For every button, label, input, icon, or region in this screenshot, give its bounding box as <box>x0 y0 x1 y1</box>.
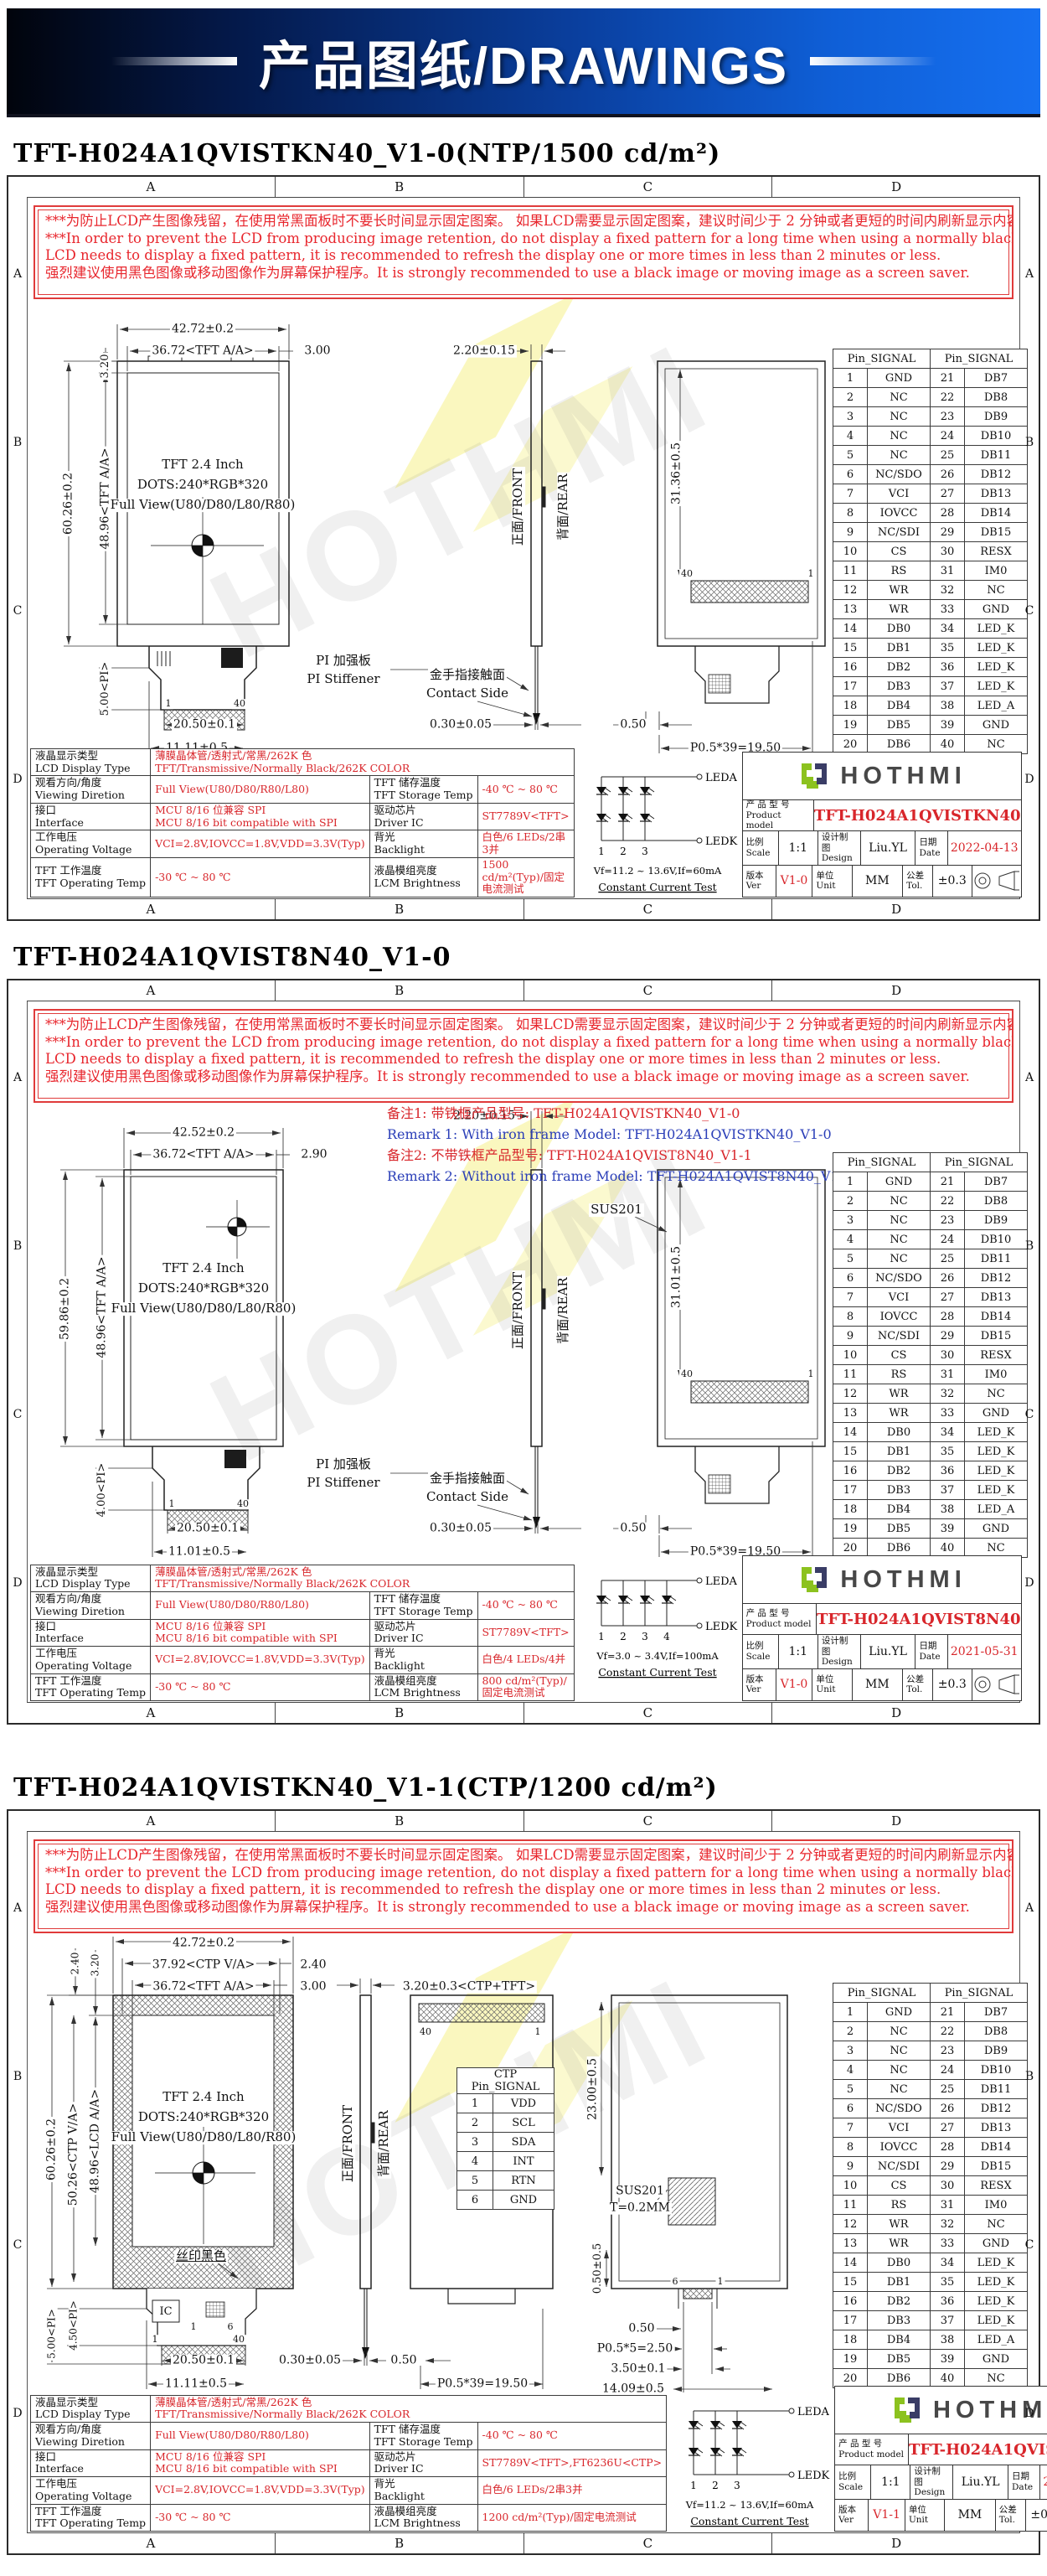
dim-label: 40 <box>418 2027 433 2037</box>
dim-label: 3.00 <box>302 345 332 358</box>
titleblock-value: 2022-04-13 <box>1040 2465 1047 2499</box>
titleblock-label: 版本Ver <box>743 866 776 897</box>
dim-label: 2.90 <box>299 1149 328 1161</box>
titleblock-value: 1:1 <box>871 2465 910 2499</box>
hothmi-logo-text: HOTHMI <box>840 763 966 790</box>
pin-row: 9NC/SDI29DB15 <box>833 1327 1028 1346</box>
dim-label: 1 <box>168 1499 177 1509</box>
warning-line: ***In order to prevent the LCD from prod… <box>45 1034 1002 1052</box>
warning-line: 强烈建议使用黑色图像或移动图像作为屏幕保护程序。It is strongly r… <box>45 1068 1002 1086</box>
spec-label: 驱动芯片Driver IC <box>369 1619 477 1647</box>
section-title-1: TFT-H024A1QVISTKN40_V1-0(NTP/1500 cd/m²) <box>13 139 1047 168</box>
drawing-sheet-2: ABCD ABCD ABCD ABCD HOTHMI ***为防止LCD产生图像… <box>7 979 1040 1725</box>
product-model-value: TFT-H024A1QVIST8N40 <box>817 1604 1021 1634</box>
title-block: HOTHMI产 品 型 号Product modelTFT-H024A1QVIS… <box>834 2386 1047 2532</box>
sheet-column-labels-bottom: ABCD <box>27 2532 1020 2553</box>
titleblock-label: 比例Scale <box>743 831 779 865</box>
drawing-sheet-3: ABCD ABCD ABCD ABCD HOTHMI ***为防止LCD产生图像… <box>7 1809 1040 2555</box>
dim-label: 31.36±0.5 <box>671 441 683 506</box>
pin-row: 16DB236LED_K <box>833 658 1028 677</box>
dim-label: 3.00 <box>298 1981 328 1994</box>
pin-row: 17DB337LED_K <box>833 1481 1028 1500</box>
frame-letter: D <box>772 177 1020 197</box>
led-circuit-svg: 123LEDALEDKVf=11.2 ~ 13.6V,If=60mAConsta… <box>670 2396 834 2532</box>
titleblock-label: 版本Ver <box>835 2500 869 2531</box>
dim-label: 48.96<TFT A/A> <box>96 1254 109 1359</box>
front-view <box>124 1170 283 1510</box>
svg-text:LEDA: LEDA <box>705 772 738 784</box>
spec-value: 薄膜晶体管/透射式/常黑/262K 色TFT/Transmissive/Norm… <box>151 1565 575 1592</box>
spec-value: -30 ℃ ~ 80 ℃ <box>151 2504 370 2532</box>
ctp-pin-row: 6GND <box>457 2191 554 2210</box>
spec-label: 背光Backlight <box>369 1647 477 1674</box>
pin-row: 19DB539GND <box>833 2350 1028 2369</box>
dim-label: 20.50±0.1 <box>175 1523 240 1535</box>
spec-value: 1200 cd/m²(Typ)/固定电流测试 <box>477 2504 667 2532</box>
image-retention-warning: ***为防止LCD产生图像残留，在使用常黑面板时不要长时间显示固定图案。 如果L… <box>34 205 1013 299</box>
dim-label: 0.30±0.05 <box>277 2355 343 2367</box>
ctp-pin-row: 2SCL <box>457 2113 554 2133</box>
module-views-3 <box>25 1930 856 2399</box>
drawing-area-3: 42.72±0.237.92<CTP V/A>2.4036.72<TFT A/A… <box>25 1930 856 2399</box>
spec-label: TFT 储存温度TFT Storage Temp <box>369 776 477 804</box>
pin-row: 14DB034LED_K <box>833 2253 1028 2273</box>
front-view <box>117 356 289 710</box>
ctp-pin-table: CTP Pin_SIGNAL1VDD2SCL3SDA4INT5RTN6GND <box>456 2067 554 2210</box>
spec-value: MCU 8/16 位兼容 SPIMCU 8/16 bit compatible … <box>151 1619 370 1647</box>
frame-letter: A <box>9 1071 26 1084</box>
hothmi-logo-icon <box>797 1563 832 1596</box>
frame-letter: D <box>9 2407 26 2420</box>
sheet-row-labels-left: ABCD <box>9 197 26 899</box>
titleblock-value: Liu.YL <box>861 831 916 865</box>
pin-row: 5NC25DB11 <box>833 1249 1028 1269</box>
titleblock-label: 比例Scale <box>835 2465 871 2499</box>
frame-letter: B <box>276 2533 524 2553</box>
spec-value: Full View(U80/D80/R80/L80) <box>151 2423 370 2450</box>
svg-text:1: 1 <box>598 846 605 857</box>
svg-text:2: 2 <box>620 1631 627 1642</box>
title-block: HOTHMI产 品 型 号Product modelTFT-H024A1QVIS… <box>742 1555 1022 1701</box>
hothmi-logo-text: HOTHMI <box>840 1566 966 1594</box>
spec-value: ST7789V<TFT> <box>477 1619 574 1647</box>
warning-line: LCD needs to display a fixed pattern, it… <box>45 1051 1002 1068</box>
dim-label: 2.40 <box>70 1951 81 1977</box>
dim-label: 0.50 <box>618 719 647 732</box>
dim-label: 1 <box>151 2335 160 2345</box>
frame-letter: C <box>524 1703 773 1723</box>
frame-letter: C <box>524 2533 773 2553</box>
dim-label: 0.50 <box>389 2355 418 2367</box>
dim-label: 丝印黑色 <box>174 2250 228 2263</box>
dim-label: 2.40 <box>298 1959 328 1972</box>
pin-row: 19DB539GND <box>833 1519 1028 1539</box>
dim-label: 2.20±0.15 <box>451 345 517 358</box>
hothmi-logo-icon <box>797 759 832 793</box>
warning-line: ***为防止LCD产生图像残留，在使用常黑面板时不要长时间显示固定图案。 如果L… <box>45 1847 1002 1865</box>
spec-value: -30 ℃ ~ 80 ℃ <box>151 1673 370 1701</box>
sheet-column-labels-bottom: ABCD <box>27 1702 1020 1723</box>
frame-letter: C <box>9 2238 26 2252</box>
ctp-pin-row: 3SDA <box>457 2133 554 2152</box>
svg-text:LEDK: LEDK <box>797 2470 830 2482</box>
spec-value: -40 ℃ ~ 80 ℃ <box>477 2423 667 2450</box>
pin-row: 13WR33GND <box>833 1404 1028 1423</box>
spec-value: -30 ℃ ~ 80 ℃ <box>151 857 370 897</box>
dim-label: 1 <box>534 2027 543 2037</box>
frame-remarks: 备注1: 带铁框产品型号: TFT-H024A1QVISTKN40_V1-0Re… <box>387 1103 852 1187</box>
spec-value: MCU 8/16 位兼容 SPIMCU 8/16 bit compatible … <box>151 803 370 830</box>
warning-line: ***为防止LCD产生图像残留，在使用常黑面板时不要长时间显示固定图案。 如果L… <box>45 1016 1002 1034</box>
titleblock-label: 单位Unit <box>905 2500 945 2531</box>
frame-letter: C <box>524 177 773 197</box>
pin-table-container: Pin_SIGNALPin_SIGNAL1GND21DB72NC22DB83NC… <box>833 1983 1028 2388</box>
sheet-row-labels-right: ABCD <box>1021 1001 1038 1703</box>
hothmi-logo: HOTHMI <box>743 1556 1021 1604</box>
spec-label: 背光Backlight <box>369 830 477 858</box>
dim-label: 0.50±0.5 <box>592 2242 604 2296</box>
dim-label: 1 <box>189 2322 199 2332</box>
pin-row: 6NC/SDO26DB12 <box>833 1269 1028 1288</box>
page: { "banner": {"title": "产品图纸/DRAWINGS"}, … <box>0 8 1047 2576</box>
spec-label: 工作电压Operating Voltage <box>31 2477 151 2505</box>
pin-row: 11RS31IM0 <box>833 1365 1028 1384</box>
dim-label: 20.50±0.1 <box>171 2355 236 2367</box>
banner-dash-right <box>810 57 936 65</box>
titleblock-container: HOTHMI产 品 型 号Product modelTFT-H024A1QVIS… <box>742 752 1022 897</box>
pin-signal-table: Pin_SIGNALPin_SIGNAL1GND21DB72NC22DB83NC… <box>833 349 1028 754</box>
spec-label: 观看方向/角度Viewing Diretion <box>31 1592 151 1620</box>
spec-label: TFT 工作温度TFT Operating Temp <box>31 1673 151 1701</box>
frame-letter: B <box>1021 1239 1038 1253</box>
frame-letter: D <box>1021 773 1038 786</box>
rear-view <box>658 361 825 703</box>
pin-table-header: Pin_SIGNAL <box>833 349 931 369</box>
section-title-3: TFT-H024A1QVISTKN40_V1-1(CTP/1200 cd/m²) <box>13 1773 1047 1803</box>
spec-value: -40 ℃ ~ 80 ℃ <box>477 776 574 804</box>
svg-text:1: 1 <box>690 2480 697 2491</box>
spec-label: 驱动芯片Driver IC <box>369 2449 477 2477</box>
pin-row: 6NC/SDO26DB12 <box>833 465 1028 484</box>
sheet-bottom-block: 液晶显示类型LCD Display Type薄膜晶体管/透射式/常黑/262K … <box>30 1557 1017 1701</box>
dim-label: TFT 2.4 Inch <box>160 458 245 472</box>
spec-value: VCI=2.8V,IOVCC=1.8V,VDD=3.3V(Typ) <box>151 830 370 858</box>
titleblock-label: 单位Unit <box>812 1669 852 1700</box>
dim-label: Contact Side <box>425 687 510 701</box>
warning-line: ***In order to prevent the LCD from prod… <box>45 230 1002 248</box>
spec-value: 薄膜晶体管/透射式/常黑/262K 色TFT/Transmissive/Norm… <box>151 748 575 776</box>
remark-line: 备注1: 带铁框产品型号: TFT-H024A1QVISTKN40_V1-0 <box>387 1103 852 1124</box>
center-mark-icon <box>151 497 264 624</box>
frame-letter: D <box>772 2533 1020 2553</box>
frame-letter: B <box>276 980 524 1001</box>
spec-label: 观看方向/角度Viewing Diretion <box>31 776 151 804</box>
dim-label: 50.26<CTP V/A> <box>68 2102 80 2207</box>
dim-label: 36.72<TFT A/A> <box>151 1981 255 1994</box>
frame-letter: B <box>9 436 26 449</box>
frame-letter: C <box>9 1408 26 1421</box>
frame-letter: C <box>1021 2238 1038 2252</box>
section-title-2: TFT-H024A1QVIST8N40_V1-0 <box>13 943 1047 972</box>
dim-label: 42.72±0.2 <box>170 323 235 336</box>
pin-row: 11RS31IM0 <box>833 2196 1028 2215</box>
pin-row: 14DB034LED_K <box>833 1423 1028 1442</box>
pin-row: 14DB034LED_K <box>833 619 1028 639</box>
pin-row: 7VCI27DB13 <box>833 1288 1028 1307</box>
dim-label: 3.20±0.3<CTP+TFT> <box>401 1981 537 1994</box>
pin-row: 12WR32NC <box>833 2215 1028 2234</box>
titleblock-value: 1:1 <box>779 831 818 865</box>
sheet-column-labels-top: ABCD <box>27 177 1020 198</box>
svg-text:2: 2 <box>620 846 627 857</box>
hothmi-logo: HOTHMI <box>743 753 1021 800</box>
titleblock-label: 日期Date <box>915 831 947 865</box>
spec-label: 接口Interface <box>31 1619 151 1647</box>
frame-letter: A <box>27 980 276 1001</box>
pin-row: 3NC23DB9 <box>833 407 1028 427</box>
dim-label: 40 <box>679 1369 694 1379</box>
frame-letter: A <box>1021 1901 1038 1915</box>
frame-letter: D <box>772 980 1020 1001</box>
dim-label: 4.50<PI> <box>69 2299 80 2352</box>
pin-row: 3NC23DB9 <box>833 2041 1028 2061</box>
dim-label: 40 <box>679 569 694 579</box>
dim-label: 1 <box>807 569 816 579</box>
titleblock-label: 比例Scale <box>743 1635 779 1668</box>
pin-row: 15DB135LED_K <box>833 639 1028 658</box>
dim-label: 正面/FRONT <box>512 1270 525 1351</box>
dim-label: 60.26±0.2 <box>63 471 75 536</box>
pin-row: 8IOVCC28DB14 <box>833 2138 1028 2157</box>
dim-label: 42.52±0.2 <box>171 1127 236 1140</box>
rear-view <box>658 1170 825 1503</box>
fpc-component <box>221 648 243 668</box>
svg-text:Constant Current Test: Constant Current Test <box>690 2515 808 2527</box>
pin-table-header: Pin_SIGNAL <box>833 1984 931 2003</box>
remark-line: Remark 1: With iron frame Model: TFT-H02… <box>387 1124 852 1145</box>
dim-label: 0.50 <box>618 1523 647 1535</box>
dim-label: 48.96<LCD A/A> <box>90 2087 102 2195</box>
frame-letter: B <box>9 1239 26 1253</box>
pin-row: 16DB236LED_K <box>833 2292 1028 2311</box>
dim-label: 金手指接触面 <box>428 1472 507 1486</box>
dim-label: PI Stiffener <box>305 1477 381 1490</box>
dim-label: TFT 2.4 Inch <box>161 2091 245 2104</box>
side-view <box>360 1995 374 2359</box>
frame-letter: B <box>1021 2070 1038 2083</box>
pin-row: 13WR33GND <box>833 2234 1028 2253</box>
dim-label: 背面/REAR <box>557 1275 570 1345</box>
banner-dash-left <box>111 57 237 65</box>
led-circuit: 123LEDALEDKVf=11.2 ~ 13.6V,If=60mAConsta… <box>578 762 742 897</box>
titleblock-value: 1:1 <box>779 1635 818 1668</box>
ctp-pin-row: 5RTN <box>457 2171 554 2191</box>
frame-letter: A <box>27 177 276 197</box>
dim-label: Contact Side <box>425 1491 510 1504</box>
pin-table-header: Pin_SIGNAL <box>931 1153 1028 1172</box>
titleblock-value: 2021-05-31 <box>948 1635 1021 1668</box>
spec-label: 液晶模组亮度LCM Brightness <box>369 1673 477 1701</box>
pin-row: 17DB337LED_K <box>833 2311 1028 2330</box>
remark-line: Remark 2: Without iron frame Model: TFT-… <box>387 1166 852 1187</box>
titleblock-value: MM <box>945 2500 996 2531</box>
hothmi-logo-icon <box>890 2393 925 2427</box>
frame-letter: D <box>9 773 26 786</box>
titleblock-container: HOTHMI产 品 型 号Product modelTFT-H024A1QVIS… <box>742 1555 1022 1701</box>
dim-label: P0.5*5=2.50 <box>596 2343 675 2356</box>
led-circuit: 1234LEDALEDKVf=3.0 ~ 3.4V,If=100mAConsta… <box>578 1565 742 1701</box>
spec-table: 液晶显示类型LCD Display Type薄膜晶体管/透射式/常黑/262K … <box>30 1565 575 1702</box>
spec-table: 液晶显示类型LCD Display Type薄膜晶体管/透射式/常黑/262K … <box>30 748 575 897</box>
dim-label: 0.30±0.05 <box>428 719 493 732</box>
svg-text:Vf=3.0 ~ 3.4V,If=100mA: Vf=3.0 ~ 3.4V,If=100mA <box>596 1650 719 1662</box>
svg-text:LEDK: LEDK <box>705 1621 738 1633</box>
frame-letter: C <box>1021 1408 1038 1421</box>
titleblock-value: V1-0 <box>776 866 813 897</box>
warning-line: 强烈建议使用黑色图像或移动图像作为屏幕保护程序。It is strongly r… <box>45 265 1002 282</box>
spec-value: 1500 cd/m²(Typ)/固定电流测试 <box>477 857 574 897</box>
pin-row: 8IOVCC28DB14 <box>833 1307 1028 1327</box>
pin-table-container: Pin_SIGNALPin_SIGNAL1GND21DB72NC22DB83NC… <box>833 349 1028 754</box>
titleblock-value: Liu.YL <box>861 1635 916 1668</box>
titleblock-label: 设计制图Design <box>910 2465 953 2499</box>
spec-label: TFT 工作温度TFT Operating Temp <box>31 2504 151 2532</box>
pin-table-header: Pin_SIGNAL <box>931 349 1028 369</box>
sheet-row-labels-right: ABCD <box>1021 1831 1038 2533</box>
drawing-sheet-1: ABCD ABCD ABCD ABCD HOTHMI ***为防止LCD产生图像… <box>7 175 1040 921</box>
spec-label: 接口Interface <box>31 2449 151 2477</box>
dim-label: 42.72±0.2 <box>171 1937 236 1950</box>
frame-letter: C <box>524 980 773 1001</box>
warning-line: LCD needs to display a fixed pattern, it… <box>45 1881 1002 1899</box>
frame-letter: D <box>9 1576 26 1590</box>
pin-row: 12WR32NC <box>833 581 1028 600</box>
product-model-row: 产 品 型 号Product modelTFT-H024A1QVISTKN40 <box>743 800 1021 831</box>
spec-label: 观看方向/角度Viewing Diretion <box>31 2423 151 2450</box>
pin-row: 19DB539GND <box>833 716 1028 735</box>
dim-label: 6 <box>671 2277 680 2287</box>
spec-value: MCU 8/16 位兼容 SPIMCU 8/16 bit compatible … <box>151 2449 370 2477</box>
spec-label: TFT 工作温度TFT Operating Temp <box>31 857 151 897</box>
titleblock-label: 设计制图Design <box>818 1635 861 1668</box>
dim-label: PI 加强板 <box>314 654 373 668</box>
svg-text:LEDK: LEDK <box>705 835 738 848</box>
dim-label: PI Stiffener <box>305 673 381 686</box>
warning-line: 强烈建议使用黑色图像或移动图像作为屏幕保护程序。It is strongly r… <box>45 1899 1002 1916</box>
dim-label: DOTS:240*RGB*320 <box>137 1282 271 1296</box>
titleblock-label: 单位Unit <box>812 866 852 897</box>
spec-label: 液晶显示类型LCD Display Type <box>31 748 151 776</box>
dim-label: 37.92<CTP V/A> <box>151 1959 256 1972</box>
dim-label: 36.72<TFT A/A> <box>151 1149 255 1161</box>
dim-label: Full View(U80/D80/L80/R80) <box>109 499 297 512</box>
sheet-row-labels-left: ABCD <box>9 1001 26 1703</box>
hothmi-logo: HOTHMI <box>835 2387 1047 2434</box>
led-circuit-svg: 123LEDALEDKVf=11.2 ~ 13.6V,If=60mAConsta… <box>578 762 742 897</box>
page-banner: 产品图纸/DRAWINGS <box>7 8 1040 117</box>
pin-row: 5NC25DB11 <box>833 2080 1028 2099</box>
center-mark-icon <box>206 1200 270 1259</box>
spec-label: 工作电压Operating Voltage <box>31 830 151 858</box>
pin-row: 9NC/SDI29DB15 <box>833 523 1028 542</box>
spec-table-container: 液晶显示类型LCD Display Type薄膜晶体管/透射式/常黑/262K … <box>30 2395 667 2532</box>
pin-table-header: Pin_SIGNAL <box>833 1153 931 1172</box>
svg-text:LEDA: LEDA <box>797 2406 830 2418</box>
titleblock-label: 版本Ver <box>743 1669 776 1700</box>
dim-label: SUS201 <box>614 2185 666 2198</box>
pin-row: 7VCI27DB13 <box>833 2118 1028 2138</box>
pin-row: 8IOVCC28DB14 <box>833 504 1028 523</box>
pin-row: 2NC22DB8 <box>833 1192 1028 1211</box>
pin-row: 1GND21DB7 <box>833 369 1028 388</box>
sheet-column-labels-top: ABCD <box>27 1811 1020 1832</box>
pin-row: 18DB438LED_A <box>833 2330 1028 2350</box>
svg-text:3: 3 <box>734 2480 740 2491</box>
spec-value: Full View(U80/D80/R80/L80) <box>151 776 370 804</box>
spec-label: 液晶显示类型LCD Display Type <box>31 2395 151 2423</box>
dim-label: 金手指接触面 <box>428 669 507 682</box>
svg-text:1: 1 <box>598 1631 605 1642</box>
warning-line: ***In order to prevent the LCD from prod… <box>45 1865 1002 1882</box>
spec-value: 白色/6 LEDs/2串3并 <box>477 2477 667 2505</box>
sheet-bottom-block: 液晶显示类型LCD Display Type薄膜晶体管/透射式/常黑/262K … <box>30 753 1017 897</box>
frame-letter: C <box>524 899 773 919</box>
led-circuit: 123LEDALEDKVf=11.2 ~ 13.6V,If=60mAConsta… <box>670 2396 834 2532</box>
frame-letter: A <box>27 899 276 919</box>
spec-value: ST7789V<TFT>,FT6236U<CTP> <box>477 2449 667 2477</box>
spec-label: 液晶模组亮度LCM Brightness <box>369 857 477 897</box>
dim-label: 正面/FRONT <box>342 2103 355 2184</box>
pin-row: 15DB135LED_K <box>833 1442 1028 1461</box>
fpc-component <box>224 1450 246 1468</box>
dim-label: 20.50±0.1 <box>172 719 237 732</box>
title-block: HOTHMI产 品 型 号Product modelTFT-H024A1QVIS… <box>742 752 1022 897</box>
titleblock-value: Liu.YL <box>953 2465 1008 2499</box>
image-retention-warning: ***为防止LCD产生图像残留，在使用常黑面板时不要长时间显示固定图案。 如果L… <box>34 1839 1013 1933</box>
dim-label: Full View(U80/D80/L80/R80) <box>110 2131 298 2144</box>
dim-label: 3.50±0.1 <box>609 2363 667 2376</box>
remark-line: 备注2: 不带铁框产品型号: TFT-H024A1QVIST8N40_V1-1 <box>387 1145 852 1166</box>
svg-text:3: 3 <box>642 846 648 857</box>
spec-value: -40 ℃ ~ 80 ℃ <box>477 1592 574 1620</box>
pin-row: 3NC23DB9 <box>833 1211 1028 1230</box>
pin-row: 4NC24DB10 <box>833 1230 1028 1249</box>
dim-label: 3.20 <box>90 1953 101 1979</box>
sheet-bottom-block: 液晶显示类型LCD Display Type薄膜晶体管/透射式/常黑/262K … <box>30 2387 1017 2532</box>
dim-label: 0.30±0.05 <box>428 1523 493 1535</box>
warning-line: ***为防止LCD产生图像残留，在使用常黑面板时不要长时间显示固定图案。 如果L… <box>45 213 1002 230</box>
svg-text:LEDA: LEDA <box>705 1575 738 1588</box>
pin-row: 1GND21DB7 <box>833 2003 1028 2022</box>
titleblock-value: V1-1 <box>869 2500 905 2531</box>
pin-row: 4NC24DB10 <box>833 2061 1028 2080</box>
pin-row: 17DB337LED_K <box>833 677 1028 696</box>
titleblock-label: 产 品 型 号Product model <box>743 1604 817 1634</box>
frame-letter: D <box>772 1811 1020 1831</box>
frame-letter: A <box>9 1901 26 1915</box>
frame-letter: B <box>1021 436 1038 449</box>
frame-letter: A <box>9 267 26 281</box>
pin-row: 13WR33GND <box>833 600 1028 619</box>
spec-table-container: 液晶显示类型LCD Display Type薄膜晶体管/透射式/常黑/262K … <box>30 1565 575 1702</box>
projection-symbol-icon <box>972 866 1021 897</box>
spec-label: 背光Backlight <box>369 2477 477 2505</box>
dim-label: T=0.2MM <box>608 2202 672 2215</box>
dim-label: 59.86±0.2 <box>59 1276 72 1342</box>
titleblock-value: ±0.3 <box>933 1669 972 1700</box>
svg-text:Constant Current Test: Constant Current Test <box>598 1666 716 1679</box>
frame-letter: D <box>1021 2407 1038 2420</box>
